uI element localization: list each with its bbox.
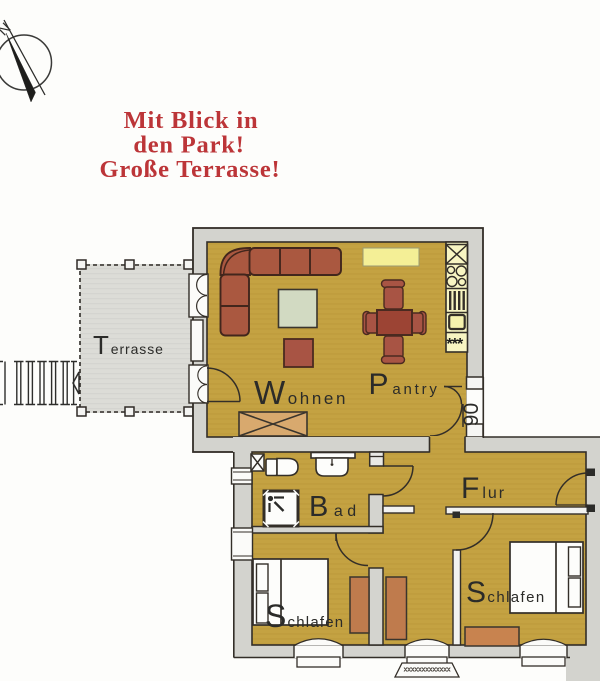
svg-text:Mit Blick in: Mit Blick in <box>124 107 259 134</box>
svg-text:Große Terrasse!: Große Terrasse! <box>100 156 281 183</box>
svg-text:***: *** <box>447 336 464 353</box>
svg-text:den Park!: den Park! <box>133 132 244 159</box>
